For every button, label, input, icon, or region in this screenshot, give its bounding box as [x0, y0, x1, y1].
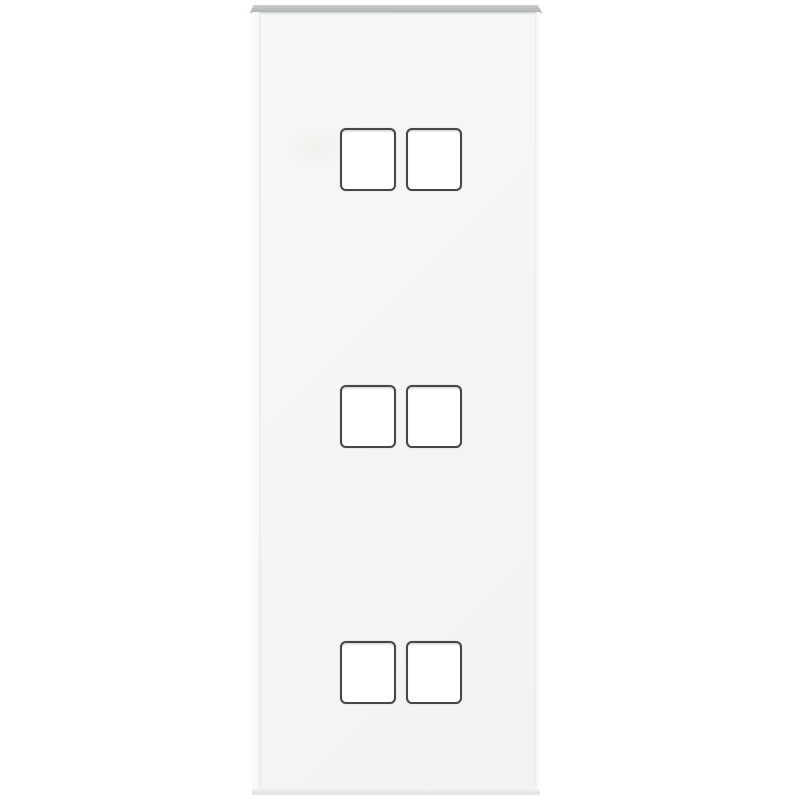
cutout-square — [340, 385, 396, 448]
panel-left-edge — [252, 12, 261, 790]
panel-right-edge — [535, 12, 540, 790]
cutout-square — [340, 128, 396, 191]
cutout-square — [406, 128, 462, 191]
cutout-square — [406, 641, 462, 704]
faceplate-panel — [252, 5, 540, 795]
cutout-row — [340, 385, 462, 448]
cutout-row — [340, 641, 462, 704]
product-photo-stage — [0, 0, 800, 800]
cutout-square — [406, 385, 462, 448]
panel-front-face — [252, 12, 540, 790]
panel-bottom-edge — [252, 789, 540, 795]
cutout-square — [340, 641, 396, 704]
cutout-row — [340, 128, 462, 191]
